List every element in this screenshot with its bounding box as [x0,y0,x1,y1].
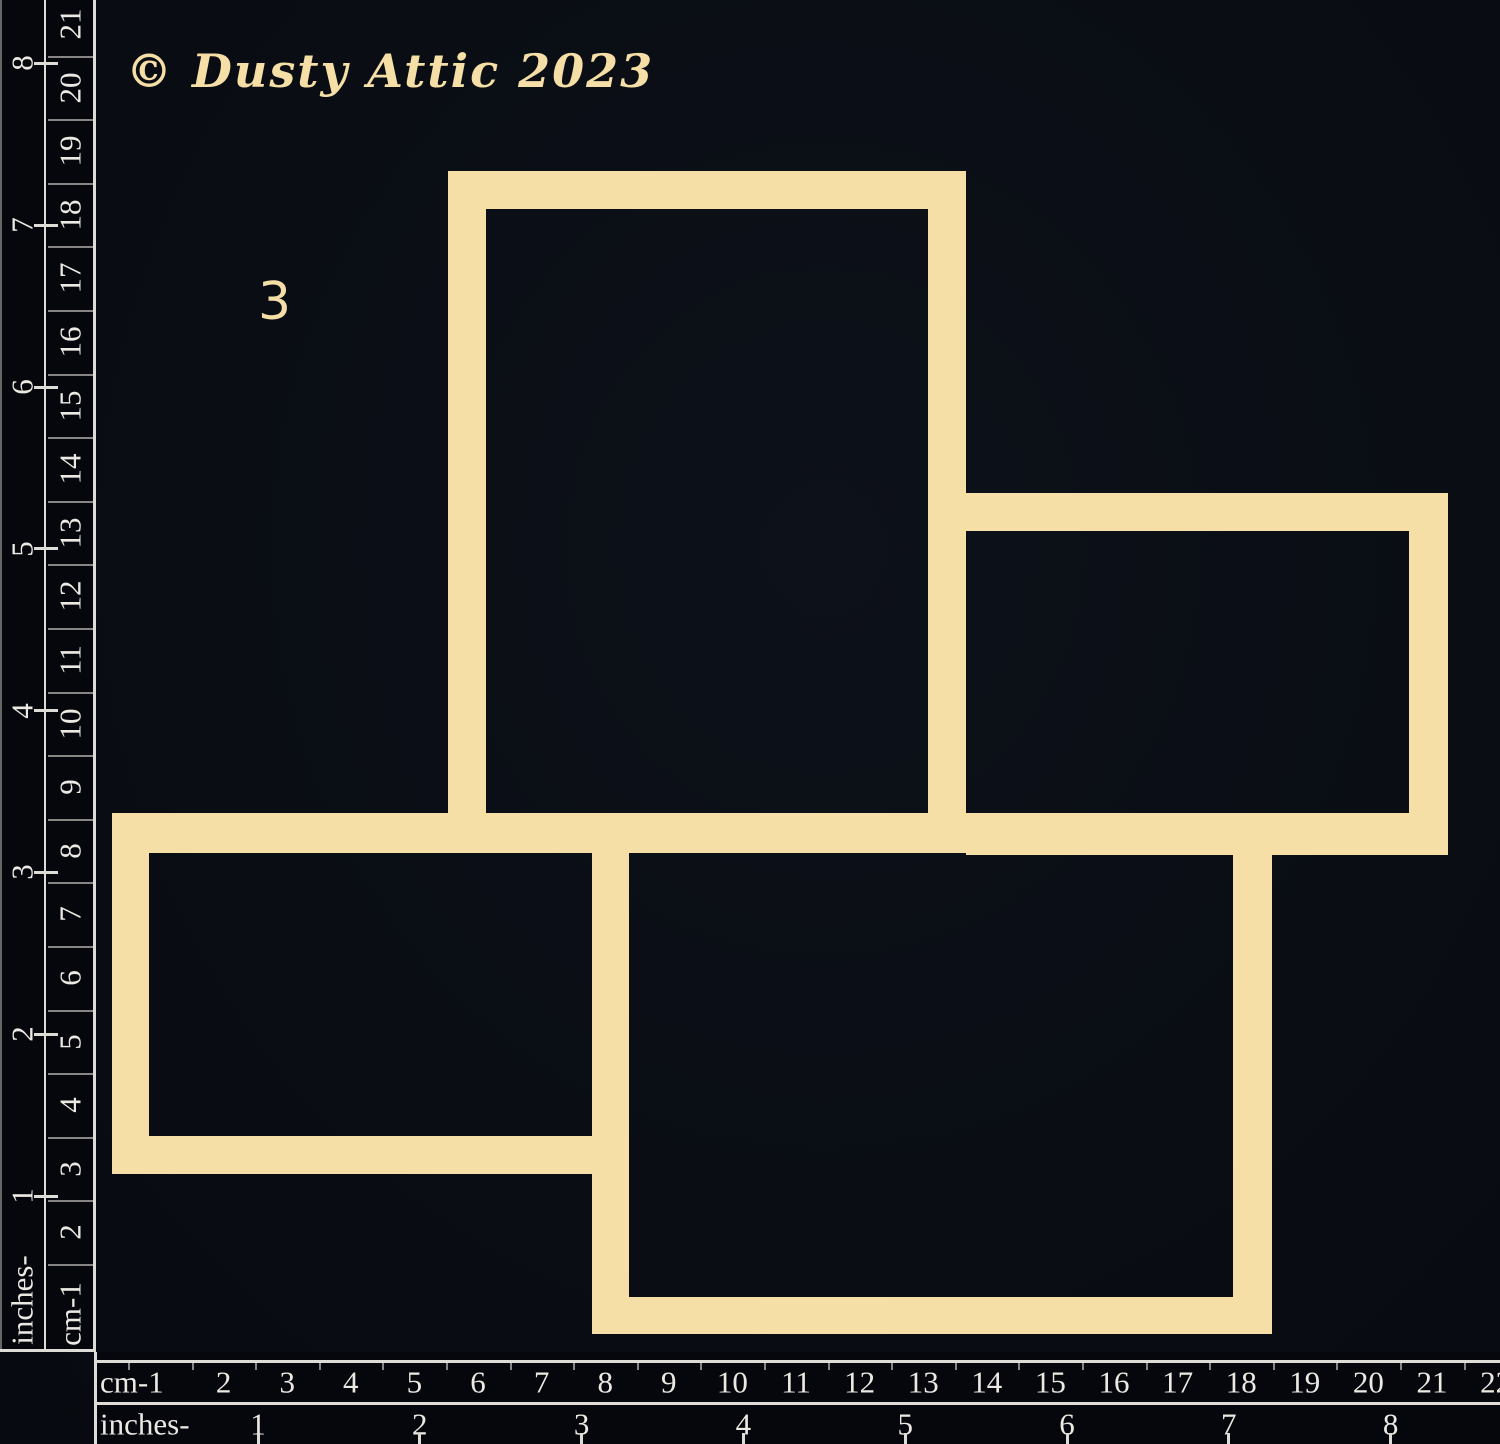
ruler-tick-cm [48,310,93,312]
ruler-number-cm: 5 [55,1034,86,1050]
ruler-left: inches- cm-1 234567891011121314151617181… [0,0,96,1352]
ruler-tick-cm [1400,1361,1402,1370]
ruler-number-inch: 5 [7,541,38,557]
ruler-number-cm: 14 [971,1367,1002,1398]
ruler-tick-inch [418,1433,421,1444]
ruler-tick-cm [48,1137,93,1139]
ruler-number-cm: 19 [55,136,86,167]
ruler-number-inch: 2 [7,1026,38,1042]
ruler-number-cm: 13 [55,517,86,548]
ruler-tick-cm [48,1264,93,1266]
ruler-tick-inch [34,62,58,65]
ruler-tick-cm [1336,1361,1338,1370]
ruler-tick-inch [580,1433,583,1444]
ruler-number-inch: 6 [7,379,38,395]
frame-landscape-right [966,493,1448,855]
ruler-tick-cm [319,1361,321,1370]
ruler-number-inch: 4 [7,703,38,719]
ruler-number-cm: 8 [55,843,86,859]
ruler-number-cm: 3 [55,1161,86,1177]
ruler-left-right-line [93,0,96,1352]
ruler-tick-inch [1389,1433,1392,1444]
ruler-tick-cm [764,1361,766,1370]
ruler-tick-inch [34,386,58,389]
ruler-number-cm: 5 [407,1367,423,1398]
ruler-number-cm: 15 [1035,1367,1066,1398]
frame-landscape-bottom-left [112,813,629,1174]
ruler-number-inch: 1 [7,1188,38,1204]
ruler-number-cm: 16 [55,327,86,358]
ruler-number-cm: 7 [534,1367,550,1398]
ruler-tick-cm [48,119,93,121]
ruler-number-cm: 11 [781,1367,811,1398]
ruler-left-divider-line [44,0,46,1352]
ruler-number-cm: 9 [661,1367,677,1398]
ruler-number-cm: 21 [55,9,86,40]
ruler-tick-cm [48,628,93,630]
ruler-number-cm: 8 [597,1367,613,1398]
ruler-tick-cm [48,246,93,248]
ruler-tick-cm [192,1361,194,1370]
ruler-tick-cm [48,374,93,376]
ruler-number-cm: 10 [717,1367,748,1398]
ruler-number-cm: 12 [55,581,86,612]
ruler-number-cm: 2 [216,1367,232,1398]
ruler-tick-cm [1082,1361,1084,1370]
ruler-number-cm: 17 [55,263,86,294]
ruler-left-inches-label: inches- [7,1255,38,1345]
ruler-number-cm: 12 [844,1367,875,1398]
ruler-tick-inch [34,224,58,227]
ruler-tick-cm [48,564,93,566]
ruler-number-cm: 15 [55,390,86,421]
ruler-tick-cm [510,1361,512,1370]
ruler-number-cm: 17 [1162,1367,1193,1398]
ruler-tick-cm [1464,1361,1466,1370]
ruler-tick-cm [1018,1361,1020,1370]
ruler-tick-cm [48,1073,93,1075]
ruler-number-inch: 8 [7,56,38,72]
ruler-tick-cm [1273,1361,1275,1370]
ruler-number-cm: 19 [1289,1367,1320,1398]
ruler-tick-cm [48,692,93,694]
ruler-number-cm: 13 [908,1367,939,1398]
product-photo: © Dusty Attic 2023 3 inches- cm-1 234567… [0,0,1500,1444]
ruler-bottom-cm-label: cm-1 [100,1367,164,1398]
frame-large-bottom-center [592,813,1272,1334]
ruler-bottom-inches-label: inches- [100,1409,190,1440]
ruler-number-cm: 22 [1480,1367,1500,1398]
ruler-left-edge-line [0,0,2,1352]
ruler-number-cm: 6 [470,1367,486,1398]
ruler-number-cm: 6 [55,970,86,986]
ruler-number-cm: 18 [1226,1367,1257,1398]
ruler-number-cm: 14 [55,454,86,485]
ruler-tick-cm [48,819,93,821]
ruler-number-cm: 21 [1417,1367,1448,1398]
ruler-number-cm: 18 [55,199,86,230]
ruler-tick-cm [48,1200,93,1202]
ruler-bottom-mid-line [94,1402,1500,1405]
ruler-number-cm: 20 [55,72,86,103]
ruler-number-inch: 3 [7,865,38,881]
ruler-tick-inch [1227,1433,1230,1444]
ruler-number-cm: 4 [343,1367,359,1398]
ruler-bottom-top-line [94,1360,1500,1363]
ruler-number-cm: 10 [55,708,86,739]
ruler-tick-cm [128,1361,130,1370]
ruler-tick-cm [1146,1361,1148,1370]
ruler-tick-inch [904,1433,907,1444]
ruler-number-cm: 2 [55,1225,86,1241]
ruler-number-cm: 11 [55,645,86,675]
ruler-tick-cm [48,437,93,439]
ruler-tick-inch [34,1195,58,1198]
ruler-tick-cm [48,882,93,884]
ruler-tick-cm [828,1361,830,1370]
ruler-tick-inch [34,547,58,550]
ruler-number-cm: 7 [55,907,86,923]
ruler-tick-cm [48,56,93,58]
ruler-tick-inch [34,709,58,712]
copyright-text: © Dusty Attic 2023 [126,44,654,98]
ruler-tick-cm [48,755,93,757]
ruler-tick-inch [742,1433,745,1444]
frame-portrait-top [448,171,966,853]
ruler-tick-cm [700,1361,702,1370]
ruler-tick-inch [1066,1433,1069,1444]
ruler-tick-cm [382,1361,384,1370]
ruler-bottom-left-line [94,1352,97,1444]
ruler-bottom: cm-1 inches- 234567891011121314151617181… [94,1352,1500,1444]
ruler-left-bottom-line [0,1349,96,1352]
ruler-tick-cm [955,1361,957,1370]
ruler-left-cm-label: cm-1 [55,1282,86,1346]
ruler-number-inch: 7 [7,217,38,233]
ruler-tick-inch [257,1433,260,1444]
ruler-tick-cm [48,946,93,948]
ruler-tick-cm [48,1010,93,1012]
ruler-tick-cm [891,1361,893,1370]
ruler-tick-cm [573,1361,575,1370]
piece-number: 3 [258,272,291,332]
ruler-tick-cm [1209,1361,1211,1370]
ruler-tick-cm [255,1361,257,1370]
ruler-tick-cm [637,1361,639,1370]
ruler-tick-cm [48,183,93,185]
ruler-tick-cm [48,501,93,503]
ruler-number-cm: 16 [1099,1367,1130,1398]
ruler-number-cm: 20 [1353,1367,1384,1398]
ruler-tick-inch [34,1033,58,1036]
ruler-number-cm: 9 [55,779,86,795]
ruler-tick-cm [446,1361,448,1370]
ruler-tick-inch [34,871,58,874]
ruler-number-cm: 4 [55,1097,86,1113]
ruler-number-cm: 3 [279,1367,295,1398]
